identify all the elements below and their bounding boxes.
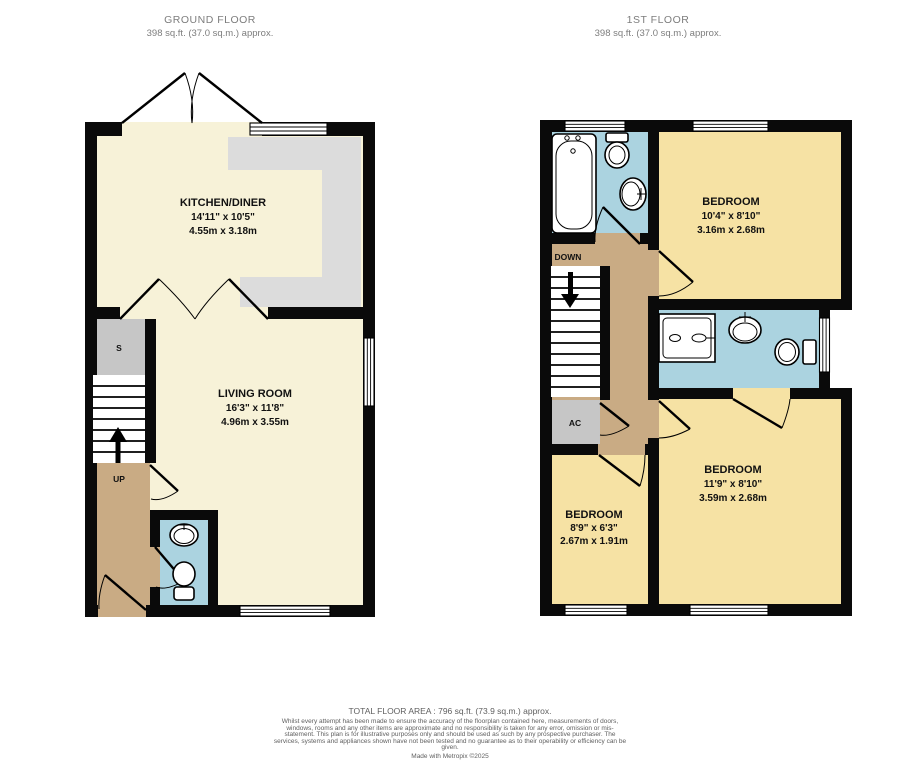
kitchen-imperial: 14'11" x 10'5" xyxy=(191,212,255,223)
toilet-icon xyxy=(605,133,629,168)
footer: TOTAL FLOOR AREA : 796 sq.ft. (73.9 sq.m… xyxy=(0,706,900,760)
toilet-icon xyxy=(775,339,816,365)
window xyxy=(565,121,625,131)
kitchen-name: KITCHEN/DINER xyxy=(180,197,266,209)
bedroom1-door-opening xyxy=(648,250,659,296)
ground-floor-header: GROUND FLOOR 398 sq.ft. (37.0 sq.m.) app… xyxy=(60,14,360,39)
total-floor-area: TOTAL FLOOR AREA : 796 sq.ft. (73.9 sq.m… xyxy=(0,706,900,716)
ground-floor-plan: S UP KITCHEN/DINER 14'11" x 10'5" 4.55m … xyxy=(85,38,377,622)
patio-door-opening xyxy=(122,122,262,136)
bedroom3-imperial: 8'9" x 6'3" xyxy=(570,523,618,534)
down-arrow-icon xyxy=(568,272,573,296)
wall xyxy=(150,510,160,547)
up-label: UP xyxy=(113,474,125,484)
wall xyxy=(600,266,610,400)
window xyxy=(693,121,768,131)
wall xyxy=(150,587,160,605)
wall xyxy=(648,120,659,616)
wc-door-opening xyxy=(150,547,160,587)
window xyxy=(565,605,627,615)
first-floor-plan: DOWN AC BEDROOM 10'4" x 8'10" 3.16m x 2.… xyxy=(537,38,859,622)
kitchen-metric: 4.55m x 3.18m xyxy=(189,226,257,237)
bedroom1-metric: 3.16m x 2.68m xyxy=(697,225,765,236)
sink-icon xyxy=(620,178,646,210)
wall xyxy=(841,388,852,616)
window xyxy=(240,606,330,616)
down-label: DOWN xyxy=(555,252,582,262)
bathtub-icon xyxy=(552,134,596,233)
disclaimer-text: Whilst every attempt has been made to en… xyxy=(273,719,627,752)
hallway xyxy=(93,463,150,605)
bedroom3-metric: 2.67m x 1.91m xyxy=(560,536,628,547)
metropix-credit: Made with Metropix ©2025 xyxy=(0,753,900,760)
bedroom2-metric: 3.59m x 2.68m xyxy=(699,493,767,504)
first-floor-header: 1ST FLOOR 398 sq.ft. (37.0 sq.m.) approx… xyxy=(508,14,808,39)
bedroom3-name: BEDROOM xyxy=(565,509,622,521)
sink-icon xyxy=(170,524,198,546)
living-imperial: 16'3" x 11'8" xyxy=(226,403,284,414)
wall xyxy=(85,122,97,616)
window xyxy=(820,318,830,372)
wall xyxy=(208,510,218,605)
bedroom3-door-opening xyxy=(598,444,645,455)
first-floor-title: 1ST FLOOR xyxy=(508,14,808,26)
living-metric: 4.96m x 3.55m xyxy=(221,417,289,428)
window xyxy=(250,123,327,135)
shower-room-door-opening xyxy=(733,388,790,399)
storage-label: S xyxy=(116,343,122,353)
shower-icon xyxy=(659,314,715,362)
wall xyxy=(145,319,156,463)
staircase-down xyxy=(551,266,600,397)
toilet-icon xyxy=(173,562,195,600)
living-name: LIVING ROOM xyxy=(218,388,292,400)
wall xyxy=(540,120,552,616)
french-doors xyxy=(122,73,262,123)
staircase-up xyxy=(93,375,145,463)
up-arrow-icon xyxy=(116,439,121,463)
window xyxy=(364,338,374,406)
floorplan-page: GROUND FLOOR 398 sq.ft. (37.0 sq.m.) app… xyxy=(0,0,900,770)
bedroom2-door-opening xyxy=(648,400,659,438)
ac-label: AC xyxy=(569,418,581,428)
wall xyxy=(150,510,218,520)
bedroom2-imperial: 11'9" x 8'10" xyxy=(704,479,762,490)
ground-floor-title: GROUND FLOOR xyxy=(60,14,360,26)
front-door-opening xyxy=(98,605,146,617)
bedroom2-name: BEDROOM xyxy=(704,464,761,476)
window xyxy=(690,605,768,615)
bedroom1-name: BEDROOM xyxy=(702,196,759,208)
wall xyxy=(841,120,852,310)
bedroom1-imperial: 10'4" x 8'10" xyxy=(702,211,761,222)
